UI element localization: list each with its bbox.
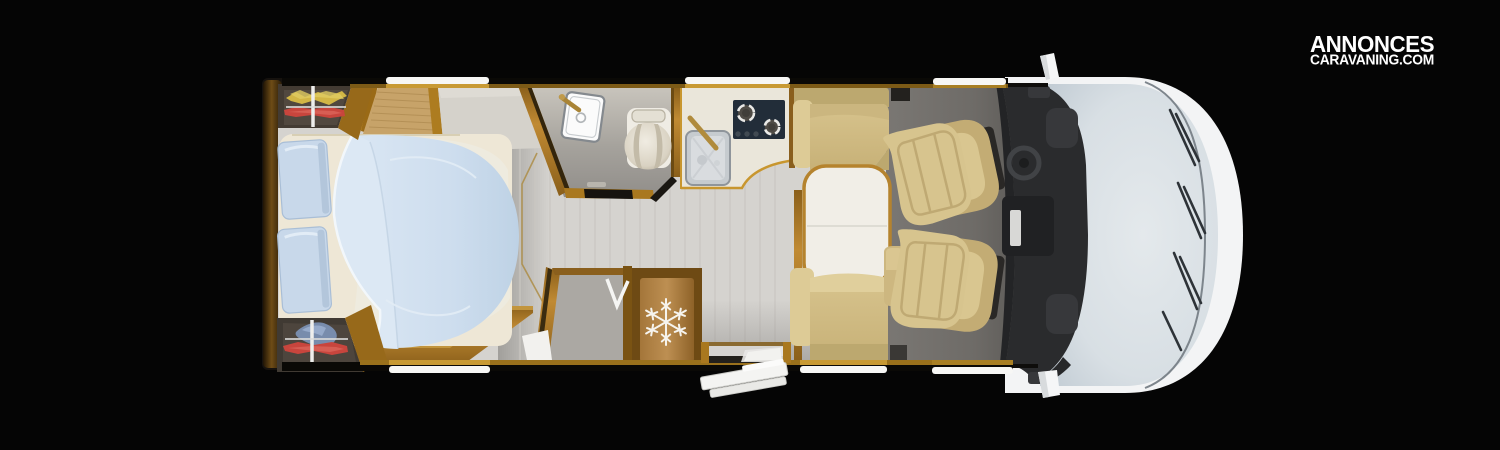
svg-text:CARAVANING.COM: CARAVANING.COM xyxy=(1310,52,1434,69)
